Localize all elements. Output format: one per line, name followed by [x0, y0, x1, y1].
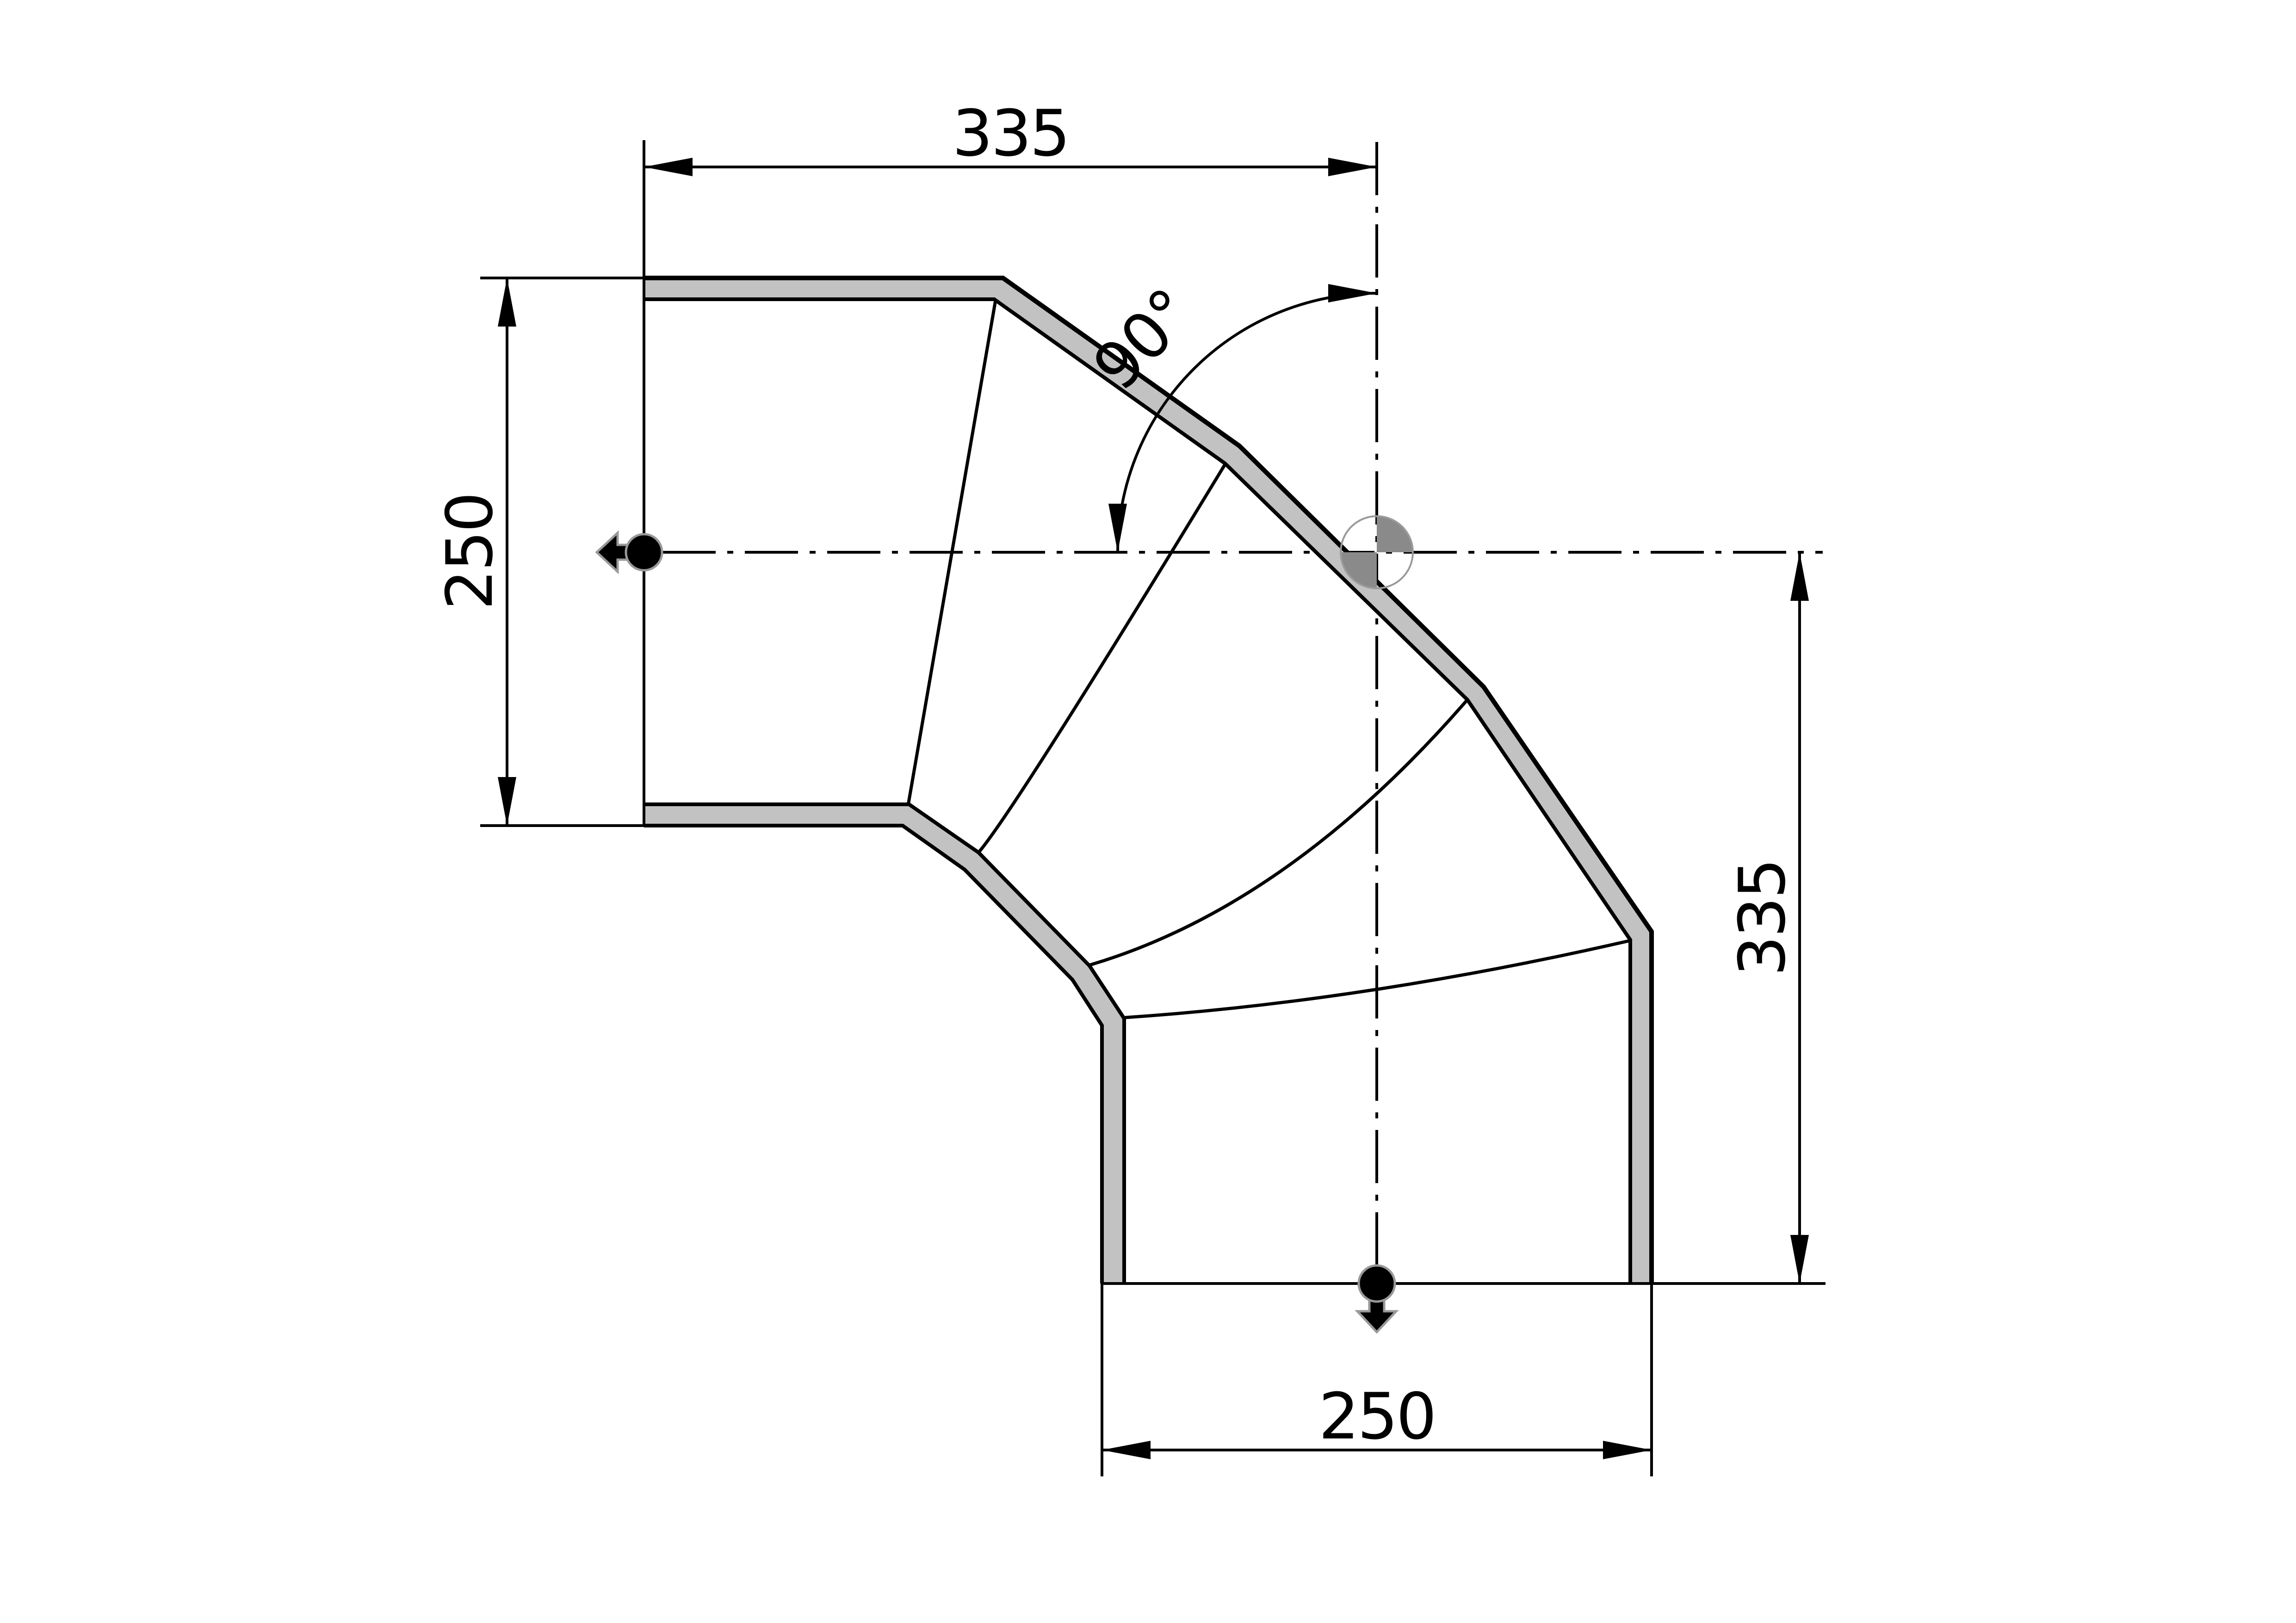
outer-wall-inner-edge — [644, 299, 1630, 1284]
top-dim-arrow-left — [644, 158, 693, 176]
top-dimension: 335 — [644, 96, 1377, 278]
bottom-dim-arrow-left — [1102, 1441, 1151, 1459]
center-target-icon — [1341, 516, 1413, 588]
left-dim-label: 250 — [433, 494, 507, 610]
flow-direction-down-icon — [1357, 1265, 1396, 1332]
left-dim-arrow-top — [498, 278, 516, 327]
inner-wall-outer-edge — [644, 826, 1102, 1284]
flow-dot-left — [626, 534, 662, 570]
left-dim-arrow-bottom — [498, 777, 516, 826]
joint-seam-3 — [1090, 701, 1467, 965]
top-dim-arrow-right — [1328, 158, 1377, 176]
angle-arrow-down — [1108, 504, 1127, 552]
angle-label: 90° — [1079, 275, 1207, 404]
angle-dimension: 90° — [1079, 275, 1377, 552]
joint-seam-2 — [979, 464, 1225, 852]
angle-arrow-right — [1328, 284, 1377, 302]
right-dimension: 335 — [1652, 552, 1826, 1284]
right-dim-label: 335 — [1725, 860, 1800, 976]
bottom-dim-arrow-right — [1603, 1441, 1652, 1459]
top-dim-label: 335 — [952, 96, 1068, 171]
elbow-technical-drawing: 90° 335 250 335 250 — [0, 0, 2296, 1623]
flow-dot-down — [1359, 1265, 1395, 1302]
inner-wall-bore-edge — [644, 804, 1124, 1284]
right-dim-arrow-top — [1790, 552, 1809, 601]
bottom-dim-label: 250 — [1318, 1379, 1435, 1454]
right-dim-arrow-bottom — [1790, 1235, 1809, 1284]
inner-wall-band — [644, 804, 1124, 1284]
flow-direction-left-icon — [597, 533, 662, 572]
